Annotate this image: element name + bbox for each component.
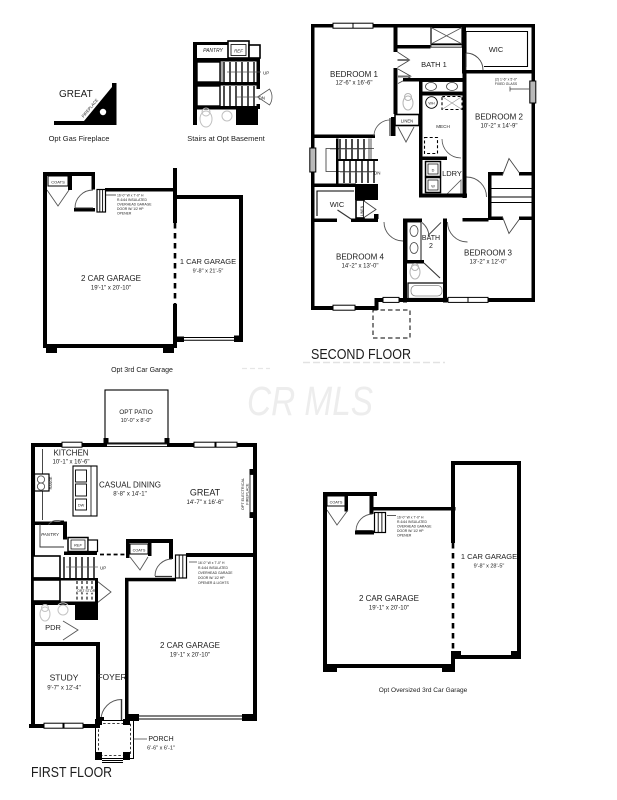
svg-text:9'-8" x 21'-5": 9'-8" x 21'-5" [193,269,224,275]
svg-text:MECH: MECH [436,124,450,129]
svg-text:RANGE: RANGE [49,476,53,489]
svg-text:R-6.64 INSULATED: R-6.64 INSULATED [397,520,427,524]
svg-text:9'-7" x 12'-4": 9'-7" x 12'-4" [47,686,81,692]
svg-text:13'-2" x 12'-0": 13'-2" x 12'-0" [470,260,507,266]
svg-text:LINEN: LINEN [360,205,364,216]
svg-text:14'-2" x 13'-0": 14'-2" x 13'-0" [342,264,379,270]
svg-text:16'-0" W x 7'-0" H: 16'-0" W x 7'-0" H [198,561,225,565]
svg-text:WH: WH [428,102,435,106]
svg-text:OPENER & LIGHTS: OPENER & LIGHTS [198,581,229,585]
svg-text:Opt Gas Fireplace: Opt Gas Fireplace [49,134,110,143]
svg-text:LDRY: LDRY [442,169,462,178]
svg-text:KITCHEN: KITCHEN [53,449,88,458]
svg-text:FIXED GLASS: FIXED GLASS [495,82,518,86]
svg-text:Stairs at Opt Basement: Stairs at Opt Basement [187,134,265,143]
svg-text:19'-1" x 20'-10": 19'-1" x 20'-10" [170,653,210,659]
svg-text:10'-0" x 8'-0": 10'-0" x 8'-0" [121,418,152,424]
svg-text:PDR: PDR [45,623,61,632]
svg-text:14'-7" x 16'-6": 14'-7" x 16'-6" [187,500,224,506]
svg-text:R-6.64 INSULATED: R-6.64 INSULATED [198,566,228,570]
svg-text:DOOR W/ 1/2 HP: DOOR W/ 1/2 HP [397,529,424,533]
svg-text:GREAT: GREAT [190,488,221,498]
svg-text:OPT PATIO: OPT PATIO [119,409,153,416]
svg-text:W: W [431,185,435,189]
svg-text:19'-1" x 20'-10": 19'-1" x 20'-10" [369,606,409,612]
svg-text:8'-8" x 14'-1": 8'-8" x 14'-1" [113,492,147,498]
svg-text:UP: UP [100,566,106,571]
svg-text:DW: DW [78,504,85,508]
svg-text:Opt Oversized 3rd Car Garage: Opt Oversized 3rd Car Garage [379,687,468,694]
svg-text:BEDROOM 2: BEDROOM 2 [475,113,524,122]
svg-text:16'-0" W x 7'-0" H: 16'-0" W x 7'-0" H [117,194,144,198]
svg-text:D: D [432,169,435,173]
svg-text:PANTRY: PANTRY [203,48,223,54]
svg-text:BEDROOM 1: BEDROOM 1 [330,70,379,79]
svg-text:COATS: COATS [133,549,146,553]
svg-text:OPENER: OPENER [397,534,412,538]
svg-text:OPT ELECTRICAL: OPT ELECTRICAL [241,478,245,510]
svg-text:STUDY: STUDY [50,673,79,683]
svg-text:COATS: COATS [51,180,65,185]
svg-text:2 CAR GARAGE: 2 CAR GARAGE [81,274,141,283]
svg-text:BEDROOM 3: BEDROOM 3 [464,249,513,258]
svg-text:BATH: BATH [422,235,440,242]
svg-text:16'-0" W x 7'-0" H: 16'-0" W x 7'-0" H [397,516,424,520]
svg-text:REF: REF [74,543,83,548]
svg-text:WIC: WIC [330,200,345,209]
svg-text:R-6.64 INSULATED: R-6.64 INSULATED [117,198,147,202]
svg-text:9'-8" x 28'-5": 9'-8" x 28'-5" [474,564,505,570]
svg-text:PANTRY: PANTRY [41,532,60,537]
svg-text:REF: REF [234,49,243,54]
svg-text:BEDROOM 4: BEDROOM 4 [336,253,385,262]
svg-text:DN: DN [259,96,266,101]
svg-text:6'-6" x 6'-1": 6'-6" x 6'-1" [147,746,175,752]
svg-text:12'-6" x 16'-6": 12'-6" x 16'-6" [336,81,373,87]
svg-text:LINEN: LINEN [401,119,413,124]
svg-text:CASUAL DINING: CASUAL DINING [99,481,161,490]
svg-text:19'-1" x 20'-10": 19'-1" x 20'-10" [91,286,131,292]
svg-text:Opt 3rd Car Garage: Opt 3rd Car Garage [111,367,173,374]
svg-text:FIREPLACE: FIREPLACE [246,483,250,505]
svg-text:OVERHEAD GARAGE: OVERHEAD GARAGE [198,571,233,575]
svg-text:SECOND FLOOR: SECOND FLOOR [311,346,411,363]
svg-text:WIC: WIC [489,45,504,54]
svg-text:OVERHEAD GARAGE: OVERHEAD GARAGE [117,203,152,207]
svg-text:1 CAR GARAGE: 1 CAR GARAGE [180,257,236,266]
svg-text:OPENER: OPENER [117,212,132,216]
svg-text:UP: UP [263,71,269,76]
svg-text:FOYER: FOYER [97,672,126,682]
svg-text:DOOR W/ 1/2 HP: DOOR W/ 1/2 HP [198,576,225,580]
svg-text:PORCH: PORCH [148,736,173,743]
svg-text:2 CAR GARAGE: 2 CAR GARAGE [359,594,419,603]
svg-text:DOOR W/ 1/2 HP: DOOR W/ 1/2 HP [117,207,144,211]
svg-text:2: 2 [429,243,433,250]
svg-text:GREAT: GREAT [59,89,93,100]
svg-text:10'-2" x 14'-9": 10'-2" x 14'-9" [481,124,518,130]
svg-text:BATH 1: BATH 1 [421,60,447,69]
svg-text:2 CAR GARAGE: 2 CAR GARAGE [160,641,220,650]
svg-text:1 CAR GARAGE: 1 CAR GARAGE [461,552,517,561]
svg-text:(2) 1'-6" x 5'-0": (2) 1'-6" x 5'-0" [495,78,518,82]
svg-text:CR MLS: CR MLS [247,378,373,424]
svg-text:DN: DN [374,171,381,176]
svg-text:OVERHEAD GARAGE: OVERHEAD GARAGE [397,525,432,529]
svg-text:COATS: COATS [330,501,343,505]
svg-text:FIRST FLOOR: FIRST FLOOR [31,764,112,781]
svg-text:10'-1" x 16'-6": 10'-1" x 16'-6" [53,460,90,466]
